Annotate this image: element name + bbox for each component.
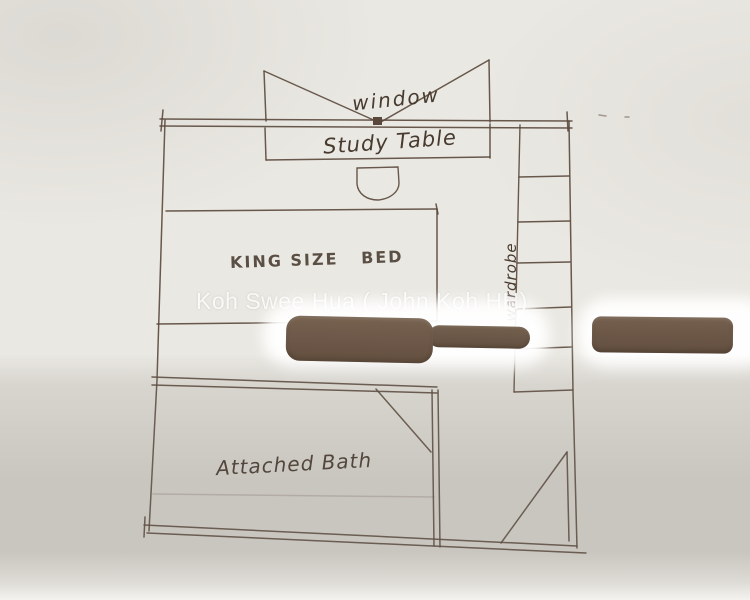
marker-pen-body <box>286 315 434 363</box>
floor-plan-photo: window Study Table KING SIZE BED wardrob… <box>0 0 750 600</box>
corner-triangle <box>501 452 569 543</box>
chair-outline <box>357 167 399 200</box>
door-swing-line <box>376 389 431 452</box>
marker-pen-cap <box>592 316 733 353</box>
marker-pen-tip <box>428 325 530 349</box>
